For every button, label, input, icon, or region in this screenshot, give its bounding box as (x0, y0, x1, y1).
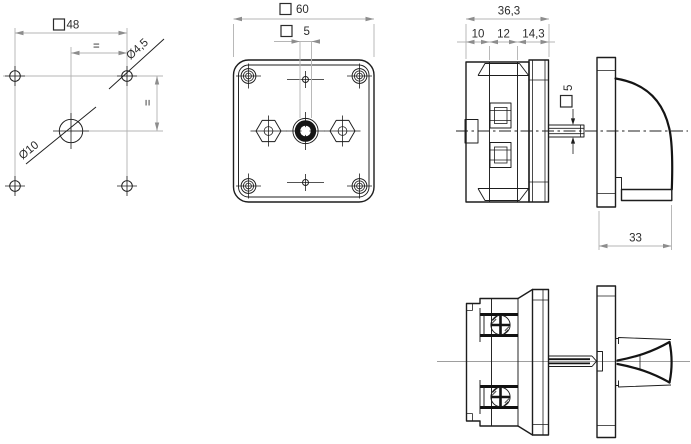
square-symbol (54, 19, 65, 30)
shaft-boss (286, 112, 325, 150)
terminal-clamps (490, 103, 511, 168)
drawing-canvas: 48 = = Ø4,5 (0, 0, 691, 444)
label-center-diameter: Ø10 (17, 107, 96, 164)
dim-square-5: 5 (274, 26, 320, 119)
dia-45-label: Ø4,5 (124, 37, 151, 63)
dim-label-48: 48 (67, 20, 80, 32)
terminal-screw-top (480, 308, 518, 342)
front-view: 60 5 (234, 4, 375, 203)
dim-label-10: 10 (472, 29, 485, 41)
square-symbol (561, 96, 573, 108)
drill-plan-view: 48 = = Ø4,5 (3, 19, 164, 196)
square-symbol (281, 26, 292, 37)
dim-label-363: 36,3 (498, 6, 520, 18)
bottom-view (437, 286, 690, 438)
front-flange-edge (533, 290, 549, 436)
dim-label-12: 12 (497, 29, 510, 41)
dim-depth-segments: 10 12 14,3 (457, 29, 555, 61)
square-symbol (280, 4, 291, 15)
dim-equal-vertical: = (143, 76, 160, 131)
dim-label-33: 33 (629, 233, 642, 245)
dim-label-5: 5 (304, 26, 310, 38)
switch-body-bottom (467, 290, 533, 436)
handle-top-view (616, 338, 672, 388)
terminal-screw-bottom (480, 380, 518, 414)
dim-label-shaft-5: 5 (563, 85, 575, 91)
handle-profile (616, 79, 673, 201)
square-shaft-hole (302, 127, 310, 135)
center-hole (53, 113, 89, 149)
dim-label-60: 60 (296, 4, 309, 16)
switch-technical-drawing: 48 = = Ø4,5 (0, 0, 691, 444)
dia-10-label: Ø10 (17, 139, 41, 162)
dim-label-143: 14,3 (522, 29, 544, 41)
side-view: 36,3 10 12 14,3 5 33 (456, 6, 688, 251)
dim-handle-length: 33 (599, 205, 672, 250)
dim-shaft-square-5: 5 (561, 85, 576, 154)
dim-equal-horizontal: = (71, 41, 127, 56)
equal-symbol: = (93, 41, 100, 53)
equal-symbol: = (143, 99, 155, 106)
escutcheon-plate (597, 58, 616, 208)
dim-square-48: 48 (15, 19, 127, 35)
